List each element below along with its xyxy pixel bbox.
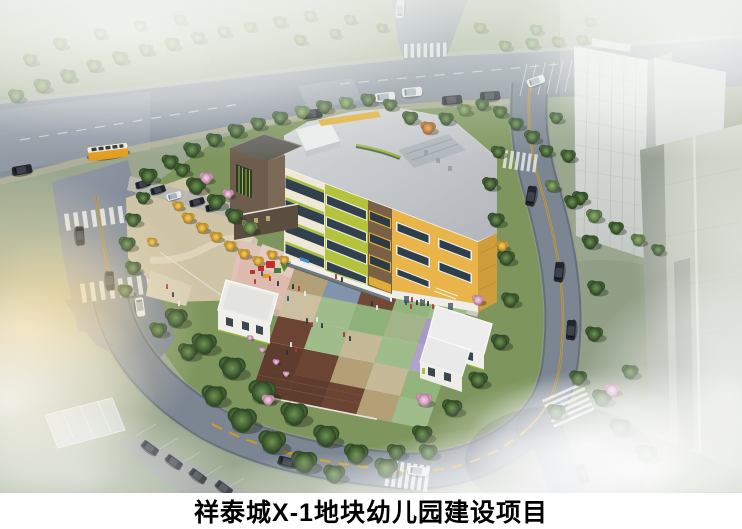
project-rendering-page: 祥泰城X-1地块幼儿园建设项目 (0, 0, 742, 529)
project-title: 祥泰城X-1地块幼儿园建设项目 (194, 493, 548, 529)
rendering-svg (0, 0, 742, 493)
aerial-rendering (0, 0, 742, 493)
caption-bar: 祥泰城X-1地块幼儿园建设项目 (0, 493, 742, 529)
facade-brown-band (368, 200, 392, 298)
